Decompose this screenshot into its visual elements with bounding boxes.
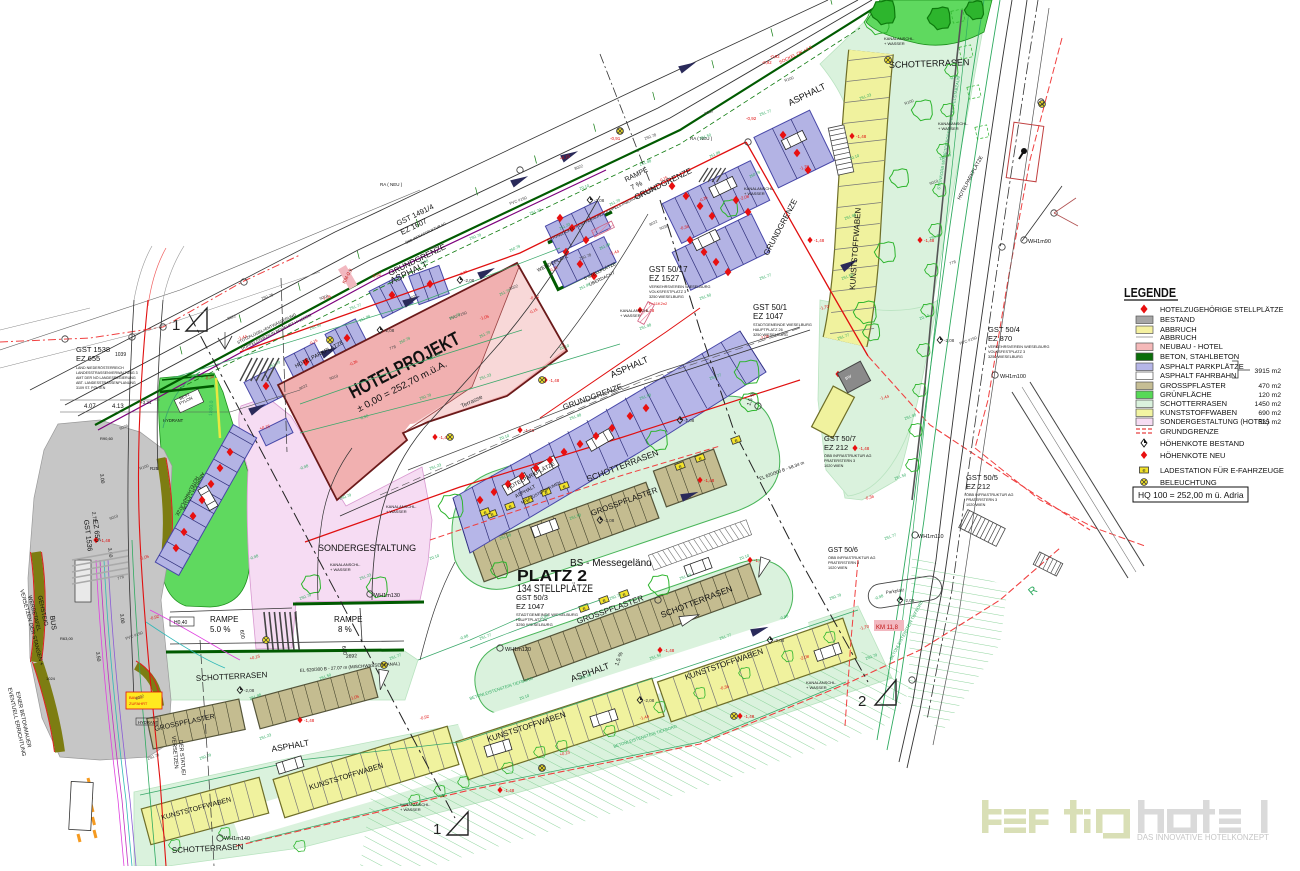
svg-text:+ WASSER: + WASSER [620,313,641,318]
svg-text:-0,92: -0,92 [770,54,780,59]
svg-text:600: 600 [238,629,245,639]
svg-text:LADESTATION FÜR E-FAHRZEUGE: LADESTATION FÜR E-FAHRZEUGE [1160,466,1284,475]
svg-text:EZ 1527: EZ 1527 [649,274,680,283]
svg-text:+ WASSER: + WASSER [884,41,905,46]
svg-text:EZ 1047: EZ 1047 [753,312,784,321]
svg-text:5.0 %: 5.0 % [210,625,230,634]
svg-text:-2,08: -2,08 [604,518,615,523]
svg-text:-2,08: -2,08 [244,688,255,693]
svg-text:-2,08: -2,08 [904,598,915,603]
svg-text:LEGENDE: LEGENDE [1124,285,1176,300]
svg-text:-2,08: -2,08 [684,418,695,423]
svg-text:BS - Messegelände: BS - Messegelände [570,558,658,569]
svg-text:120 m2: 120 m2 [1258,392,1281,399]
svg-text:GST 50/1: GST 50/1 [753,303,788,312]
svg-text:PRATERSTERN 3: PRATERSTERN 3 [828,561,859,565]
svg-text:-0,92: -0,92 [746,116,757,121]
svg-text:HÖHENKOTE BESTAND: HÖHENKOTE BESTAND [1160,439,1245,448]
svg-text:-1,48: -1,48 [744,714,755,719]
svg-text:-0,92: -0,92 [762,60,772,65]
svg-text:4.07: 4.07 [84,404,96,410]
svg-text:WH1m140: WH1m140 [224,836,250,842]
svg-text:ZUFAHRT: ZUFAHRT [129,701,148,706]
svg-text:SONDERGESTALTUNG (HOTEL): SONDERGESTALTUNG (HOTEL) [1160,417,1269,426]
svg-text:EZ 212: EZ 212 [824,443,848,452]
svg-text:RAMPE: RAMPE [210,615,238,624]
svg-text:3109 ST. PÖLTEN: 3109 ST. PÖLTEN [76,386,106,390]
svg-text:PRATERSTERN 3: PRATERSTERN 3 [824,459,855,463]
svg-text:2: 2 [858,693,866,710]
svg-text:1450 m2: 1450 m2 [1255,401,1282,408]
svg-text:1800.0: 1800.0 [208,400,215,416]
svg-text:+ WASSER: + WASSER [400,807,421,812]
svg-text:WH1m120: WH1m120 [505,647,531,653]
svg-text:R90,60: R90,60 [100,436,114,441]
svg-text:AMT DER NÖ LANDESREGIERUNG: AMT DER NÖ LANDESREGIERUNG [76,376,136,380]
svg-text:GROSSPFLASTER: GROSSPFLASTER [1160,381,1226,390]
svg-text:-1,48: -1,48 [856,134,867,139]
svg-text:GST 50/7: GST 50/7 [824,434,856,443]
svg-text:-2,08: -2,08 [594,198,605,203]
svg-text:-2,08: -2,08 [774,638,785,643]
svg-text:ÖBB INFRASTRUKTUR AG: ÖBB INFRASTRUKTUR AG [966,493,1014,497]
svg-text:KUNSTSTOFFWABEN: KUNSTSTOFFWABEN [1160,408,1237,417]
svg-text:-1,48: -1,48 [664,648,675,653]
svg-text:+ WASSER: + WASSER [330,567,351,572]
svg-text:GRUNDGRENZE: GRUNDGRENZE [1160,427,1219,436]
svg-text:3250 WIESELBURG: 3250 WIESELBURG [988,355,1023,359]
svg-text:WH1m110: WH1m110 [918,534,944,540]
svg-text:2692: 2692 [346,653,358,660]
svg-text:WH1m90: WH1m90 [1028,239,1051,245]
svg-text:GST 50/5: GST 50/5 [966,473,998,482]
svg-text:1020 WIEN: 1020 WIEN [828,566,848,570]
svg-text:1: 1 [433,821,441,838]
svg-text:GST 50/3: GST 50/3 [516,593,548,602]
svg-text:RA ( NEU ): RA ( NEU ) [380,182,403,187]
svg-text:WH1m130: WH1m130 [374,593,400,599]
svg-text:LAND NIEDERÖSTERREICH: LAND NIEDERÖSTERREICH [76,366,124,370]
svg-text:ABT. LANDESSTRASSENPLANUNG: ABT. LANDESSTRASSENPLANUNG [76,381,136,385]
svg-text:-1,48: -1,48 [304,718,315,723]
svg-text:470 m2: 470 m2 [1258,383,1281,390]
svg-text:EZ 212: EZ 212 [966,482,990,491]
svg-text:1020 WIEN: 1020 WIEN [966,503,986,507]
svg-text:VERKEHRSVEREIN WIESELBURG: VERKEHRSVEREIN WIESELBURG [649,285,710,289]
svg-text:KM 11,8: KM 11,8 [876,625,899,631]
svg-text:GST 1538: GST 1538 [76,345,110,354]
svg-text:BELEUCHTUNG: BELEUCHTUNG [1160,478,1217,487]
svg-text:VOLKSFESTPLATZ 3: VOLKSFESTPLATZ 3 [649,290,686,294]
svg-text:1: 1 [172,317,180,334]
svg-text:ABBRUCH: ABBRUCH [1160,333,1197,342]
svg-text:HAUPTPLATZ 26: HAUPTPLATZ 26 [753,328,783,332]
svg-text:690 m2: 690 m2 [1258,410,1281,417]
svg-text:-1,48: -1,48 [504,788,515,793]
svg-text:H0,40: H0,40 [174,620,188,626]
svg-text:1024: 1024 [46,676,56,681]
svg-text:GST 50/17: GST 50/17 [649,265,688,274]
svg-text:-2,08: -2,08 [384,328,395,333]
svg-text:VOLKSFESTPLATZ 3: VOLKSFESTPLATZ 3 [988,350,1025,354]
svg-text:NEUBAU - HOTEL: NEUBAU - HOTEL [1160,342,1223,351]
svg-text:8 %: 8 % [338,625,352,634]
svg-text:+3,24: +3,24 [140,400,152,405]
svg-text:1020 WIEN: 1020 WIEN [824,464,844,468]
svg-text:ÖBB INFRASTRUKTUR AG: ÖBB INFRASTRUKTUR AG [828,556,876,560]
svg-text:R25: R25 [150,466,159,471]
svg-text:GST 50/4: GST 50/4 [988,325,1020,334]
svg-text:STADTGEMEINDE WIESELBURG: STADTGEMEINDE WIESELBURG [753,323,812,327]
svg-text:ÖBB INFRASTRUKTUR AG: ÖBB INFRASTRUKTUR AG [824,454,872,458]
svg-text:-1,48: -1,48 [704,478,715,483]
svg-text:3250 WIESELBURG: 3250 WIESELBURG [649,295,684,299]
svg-text:-2,08: -2,08 [944,338,955,343]
svg-text:GST 50/6: GST 50/6 [828,547,858,554]
svg-text:+ WASSER: + WASSER [806,685,827,690]
svg-text:DAS INNOVATIVE HOTELKONZEPT: DAS INNOVATIVE HOTELKONZEPT [1137,832,1269,842]
svg-text:-1,48: -1,48 [100,538,111,543]
svg-text:F=11K2n2: F=11K2n2 [649,301,668,306]
svg-text:VERKEHRSVEREIN WIESELBURG: VERKEHRSVEREIN WIESELBURG [988,345,1049,349]
svg-text:WH1m100: WH1m100 [1000,374,1026,380]
svg-text:LANDESSTRASSENVERWALTUNG 3: LANDESSTRASSENVERWALTUNG 3 [76,371,138,375]
svg-text:EZ 870: EZ 870 [988,334,1012,343]
svg-text:-0,91: -0,91 [610,136,621,141]
svg-text:e: e [1142,468,1145,474]
svg-text:HOTELZUGEHÖRIGE STELLPLÄTZE: HOTELZUGEHÖRIGE STELLPLÄTZE [1160,305,1284,314]
svg-text:ASPHALT FAHRBAHN: ASPHALT FAHRBAHN [1160,371,1236,380]
svg-text:RAMPE: RAMPE [334,615,362,624]
svg-text:HQ 100 = 252,00 m ü. Adria: HQ 100 = 252,00 m ü. Adria [1138,490,1244,500]
svg-text:EZ 655: EZ 655 [76,354,100,363]
svg-text:-1,48: -1,48 [814,238,825,243]
svg-text:HYDRANT: HYDRANT [138,720,159,725]
svg-text:SONDERGESTALTUNG: SONDERGESTALTUNG [318,543,416,553]
svg-text:SCHOTTERRASEN: SCHOTTERRASEN [1160,399,1227,408]
svg-text:3915 m2: 3915 m2 [1255,368,1282,375]
svg-text:+ WASSER: + WASSER [386,509,407,514]
svg-text:4.13: 4.13 [112,404,124,410]
svg-text:BETON, STAHLBETON: BETON, STAHLBETON [1160,352,1239,361]
svg-text:3250 WIESELBURG: 3250 WIESELBURG [516,622,553,627]
svg-text:PRATERSTERN 3: PRATERSTERN 3 [966,498,997,502]
svg-text:335 m2: 335 m2 [1258,419,1281,426]
svg-text:HYDRANT: HYDRANT [163,418,184,423]
svg-text:R63,00: R63,00 [60,636,74,641]
svg-text:BESTAND: BESTAND [1160,315,1195,324]
svg-text:-1,48: -1,48 [549,378,560,383]
svg-text:-2,08: -2,08 [644,698,655,703]
svg-text:-1,48: -1,48 [859,446,870,451]
svg-text:1039: 1039 [115,352,126,358]
svg-text:HÖHENKOTE NEU: HÖHENKOTE NEU [1160,451,1225,460]
svg-text:EZ 1047: EZ 1047 [516,602,544,611]
svg-text:GRÜNFLÄCHE: GRÜNFLÄCHE [1160,390,1212,399]
svg-text:-2,08: -2,08 [464,278,475,283]
svg-text:ASPHALT PARKPLÄTZE: ASPHALT PARKPLÄTZE [1160,362,1244,371]
